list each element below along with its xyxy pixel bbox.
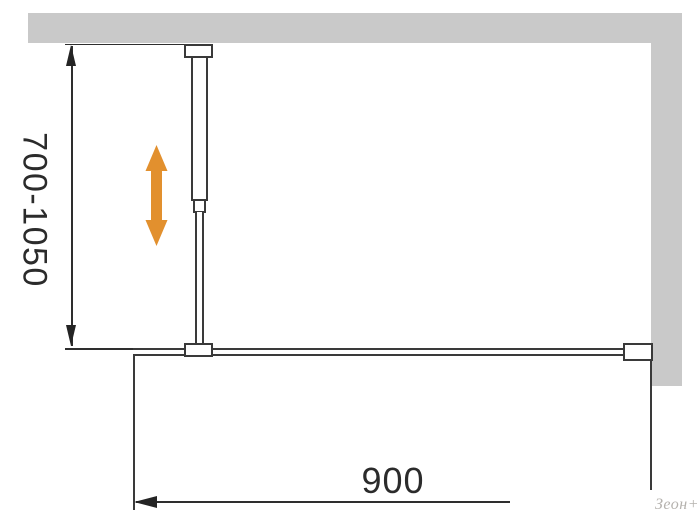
double-vertical-arrow-icon bbox=[145, 145, 168, 246]
glass-panel-left-edge bbox=[133, 349, 135, 510]
arrowhead-up-icon bbox=[66, 45, 76, 66]
horizontal-dimension-line bbox=[136, 501, 510, 503]
ceiling-wall-strip bbox=[28, 13, 682, 43]
bottom-extension-line bbox=[65, 348, 134, 350]
horizontal-dimension-label: 900 bbox=[361, 460, 424, 502]
watermark-text: Зеон+ bbox=[655, 496, 699, 514]
support-rod-lower-tube bbox=[195, 212, 205, 345]
side-wall-strip bbox=[651, 43, 682, 386]
support-rod-ceiling-bracket bbox=[184, 44, 213, 58]
diagram-canvas: 700-1050 900 Зеон+ bbox=[0, 0, 700, 524]
wall-edge-line bbox=[650, 360, 652, 490]
arrowhead-left-icon bbox=[134, 496, 157, 508]
arrowhead-down-icon bbox=[66, 325, 76, 346]
support-rod-glass-clamp bbox=[184, 343, 213, 357]
vertical-dimension-line bbox=[71, 46, 73, 346]
vertical-dimension-label: 700-1050 bbox=[15, 132, 54, 288]
glass-wall-mount-clamp bbox=[623, 343, 653, 362]
support-rod-upper-tube bbox=[191, 56, 209, 201]
top-extension-line bbox=[65, 44, 185, 46]
